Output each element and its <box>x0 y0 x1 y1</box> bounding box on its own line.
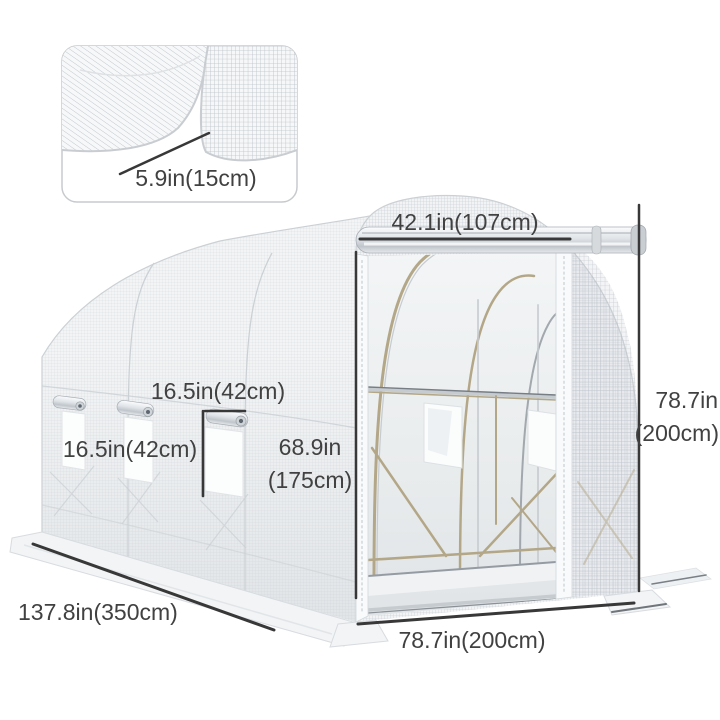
tunnel-width-label: 78.7in(200cm) <box>398 627 545 653</box>
overall-height-label-cm: (200cm) <box>635 420 719 446</box>
greenhouse-diagram-canvas: 5.9in(15cm) 42.1in(107cm) 78.7in (200cm)… <box>0 0 720 720</box>
overall-height-label-in: 78.7in <box>655 387 718 413</box>
side-window-3 <box>205 408 249 497</box>
greenhouse <box>10 196 711 647</box>
door-height-label-cm: (175cm) <box>268 467 352 493</box>
inset-mesh-pitch-label: 5.9in(15cm) <box>135 165 256 191</box>
dim-overall-height: 78.7in (200cm) <box>635 205 719 591</box>
far-right-ground-skirt <box>640 568 711 589</box>
window-pane <box>205 427 243 497</box>
tunnel-length-label: 137.8in(350cm) <box>18 599 178 625</box>
front-right-mesh-tint <box>572 252 638 597</box>
inset-fabric-right-weave <box>201 46 297 160</box>
window-height-label: 16.5in(42cm) <box>63 436 197 462</box>
product-dimension-illustration: 5.9in(15cm) 42.1in(107cm) 78.7in (200cm)… <box>0 0 720 720</box>
window-roll-cap-dot <box>239 419 243 423</box>
interior-window-b <box>528 410 556 471</box>
door-height-label-in: 68.9in <box>279 434 342 460</box>
doorway-interior <box>368 241 572 618</box>
door-width-label: 42.1in(107cm) <box>391 209 538 235</box>
window-roll-cap-dot <box>78 404 82 408</box>
dim-door-width: 42.1in(107cm) <box>360 209 570 239</box>
mesh-detail-inset: 5.9in(15cm) <box>62 46 297 202</box>
window-roll-cap-dot <box>146 410 150 414</box>
rolled-door-ring <box>592 226 601 254</box>
window-width-label: 16.5in(42cm) <box>151 378 285 404</box>
